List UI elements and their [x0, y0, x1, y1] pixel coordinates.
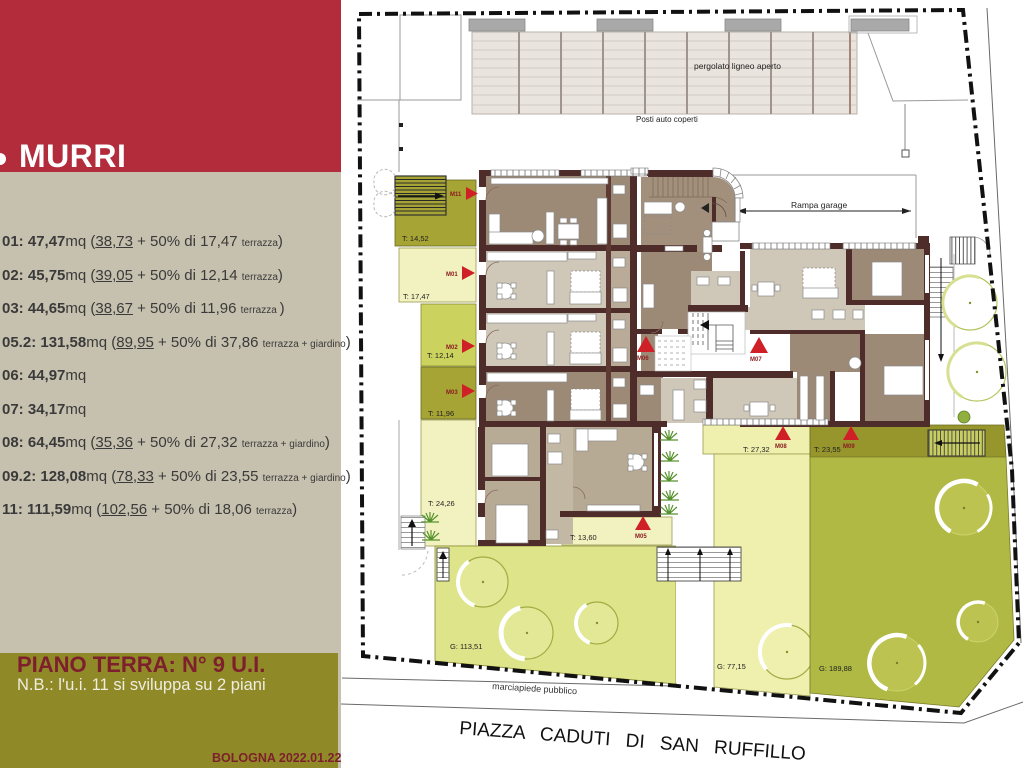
svg-text:M11: M11 [450, 192, 462, 198]
svg-text:G: 189,88: G: 189,88 [819, 664, 852, 673]
svg-text:T: 24,26: T: 24,26 [428, 499, 455, 508]
svg-text:T: 12,14: T: 12,14 [427, 351, 454, 360]
svg-text:M01: M01 [446, 272, 458, 278]
svg-text:T: 23,55: T: 23,55 [814, 445, 841, 454]
svg-text:M09: M09 [843, 444, 855, 450]
svg-text:M08: M08 [775, 444, 787, 450]
svg-text:Posti auto coperti: Posti auto coperti [636, 115, 698, 124]
svg-text:pergolato ligneo aperto: pergolato ligneo aperto [694, 61, 781, 71]
svg-text:T: 13,60: T: 13,60 [570, 533, 597, 542]
svg-text:T: 11,96: T: 11,96 [428, 409, 454, 418]
svg-text:M05: M05 [635, 534, 647, 540]
svg-text:M02: M02 [446, 345, 458, 351]
svg-text:M03: M03 [446, 390, 458, 396]
svg-text:PIAZZA CADUTI DI SAN RUFFILLO: PIAZZA CADUTI DI SAN RUFFILLO [459, 718, 807, 765]
svg-text:G: 113,51: G: 113,51 [450, 642, 482, 651]
svg-text:Rampa garage: Rampa garage [791, 200, 848, 210]
svg-text:M07: M07 [750, 357, 762, 363]
svg-text:G: 77,15: G: 77,15 [717, 662, 746, 671]
svg-text:T: 17,47: T: 17,47 [403, 292, 430, 301]
svg-text:T: 27,32: T: 27,32 [743, 445, 770, 454]
svg-text:M06: M06 [637, 356, 649, 362]
svg-text:T: 14,52: T: 14,52 [402, 234, 429, 243]
